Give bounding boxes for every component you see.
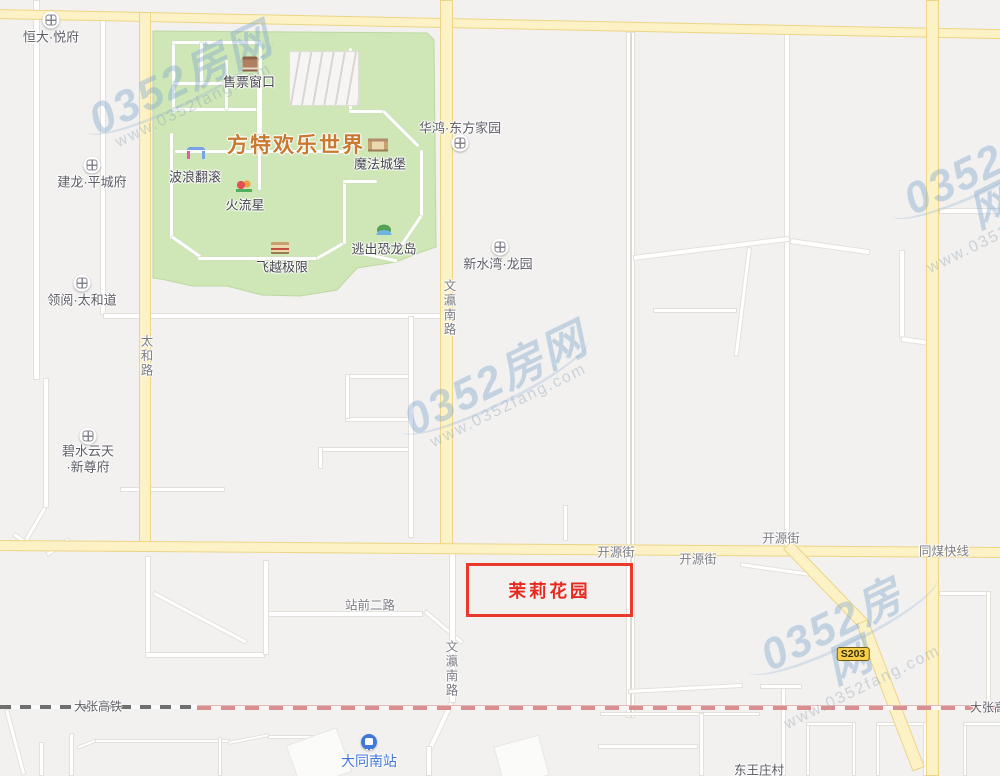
ticket-office-icon[interactable]	[243, 57, 258, 72]
attraction-label-flight-extreme[interactable]: 飞越极限	[256, 257, 308, 276]
attraction-label-magic-castle[interactable]: 魔法城堡	[354, 154, 406, 173]
compound-icon	[495, 242, 506, 253]
road-label: 开源街	[762, 528, 800, 547]
flight-extreme-icon[interactable]	[271, 242, 289, 254]
station-label-datong-south[interactable]: 大同南站	[341, 751, 397, 771]
road-label: 文瀛南路	[440, 279, 459, 337]
magic-castle-icon[interactable]	[368, 139, 388, 152]
poi-label-bishuiyuntian-xinzunfu-2[interactable]: ·新尊府	[66, 457, 109, 476]
fire-meteor-icon[interactable]	[236, 180, 252, 192]
attraction-label-ticket-office[interactable]: 售票窗口	[223, 72, 275, 91]
poi-label-jianlong-pingchengfu[interactable]: 建龙·平城府	[57, 172, 126, 191]
compound-icon	[77, 278, 88, 289]
poi-label-hengda-yuefu[interactable]: 恒大·悦府	[23, 27, 79, 46]
road-label: 开源街	[679, 549, 717, 568]
poi-label-huahong-dongfangjiayuan[interactable]: 华鸿·东方家园	[419, 118, 501, 137]
highlight-label[interactable]: 茉莉花园	[509, 578, 591, 603]
poi-label-lingyue-taihedao[interactable]: 领阅·太和道	[47, 290, 116, 309]
road-label: 大张高铁	[970, 699, 1000, 716]
label-layer: 太和路文瀛南路文瀛南路开源街开源街开源街同煤快线站前二路大张高铁大张高铁东王庄村…	[0, 0, 1000, 776]
wave-ride-icon[interactable]	[187, 147, 205, 159]
poi-label-xinshuiwan-longyuan[interactable]: 新水湾·龙园	[463, 254, 532, 273]
compound-icon	[46, 15, 57, 26]
road-label: 东王庄村	[734, 760, 784, 776]
attraction-label-wave-ride[interactable]: 波浪翻滚	[169, 167, 221, 186]
train-glyph	[365, 738, 373, 745]
attraction-label-fire-meteor[interactable]: 火流星	[225, 195, 264, 214]
train-station-icon[interactable]	[361, 734, 377, 750]
attraction-label-dino-island-escape[interactable]: 逃出恐龙岛	[351, 239, 416, 258]
road-label: 文瀛南路	[442, 640, 461, 698]
road-label: 同煤快线	[919, 541, 969, 560]
dino-island-escape-icon[interactable]	[375, 223, 393, 235]
road-label: 太和路	[137, 334, 156, 378]
highlight-box-molihuayuan[interactable]: 茉莉花园	[466, 563, 633, 617]
highway-badge-s203: S203	[837, 647, 870, 661]
compound-icon	[87, 160, 98, 171]
road-label: 大张高铁	[74, 698, 122, 715]
park-title-fantawild[interactable]: 方特欢乐世界	[227, 129, 365, 159]
map-canvas[interactable]: 0352房网www.0352fang.com0352房网www.0352fang…	[0, 0, 1000, 776]
compound-icon	[455, 138, 466, 149]
road-label: 站前二路	[345, 595, 395, 614]
residential-poi-icon[interactable]	[452, 135, 469, 152]
road-label: 开源街	[597, 542, 635, 561]
